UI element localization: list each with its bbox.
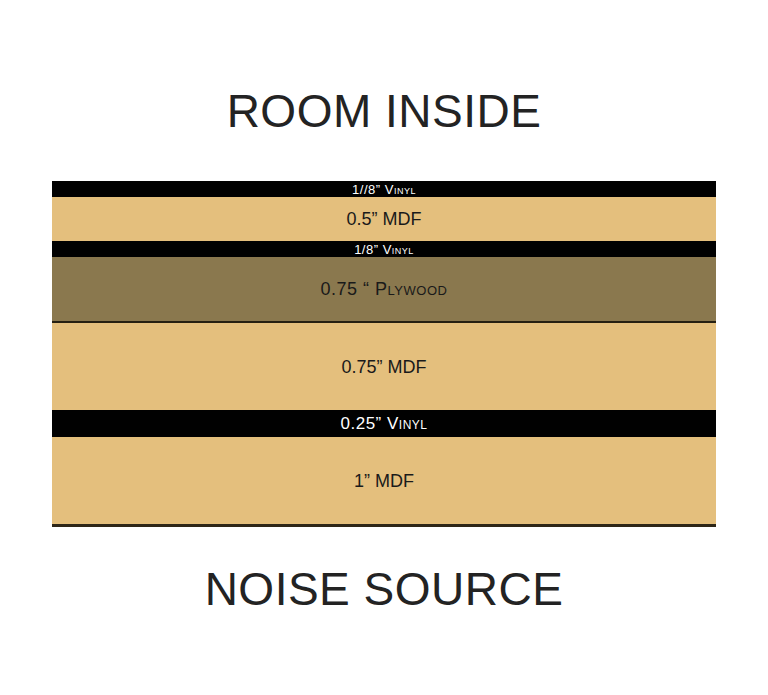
layer-label: 0.5” MDF [346, 210, 421, 228]
layer-vinyl: 0.25” Vinyl [52, 410, 716, 437]
layer-mdf: 0.75” MDF [52, 323, 716, 410]
wall-layer-stack: 1//8” Vinyl0.5” MDF1/8” Vinyl0.75 “ Plyw… [52, 181, 716, 527]
layer-mdf: 1” MDF [52, 437, 716, 524]
layer-vinyl: 1/8” Vinyl [52, 241, 716, 257]
layer-vinyl: 1//8” Vinyl [52, 181, 716, 197]
room-inside-title: ROOM INSIDE [0, 88, 768, 134]
soundproofing-diagram: ROOM INSIDE 1//8” Vinyl0.5” MDF1/8” Viny… [0, 0, 768, 695]
noise-source-title: NOISE SOURCE [0, 566, 768, 612]
layer-label: 0.75 “ Plywood [321, 280, 448, 298]
layer-label: 1/8” Vinyl [354, 243, 414, 256]
layer-label: 0.75” MDF [341, 358, 426, 376]
layer-label: 1//8” Vinyl [352, 183, 416, 196]
layer-label: 0.25” Vinyl [341, 415, 428, 432]
layer-label: 1” MDF [354, 472, 414, 490]
layer-plywood: 0.75 “ Plywood [52, 257, 716, 323]
layer-mdf: 0.5” MDF [52, 197, 716, 241]
